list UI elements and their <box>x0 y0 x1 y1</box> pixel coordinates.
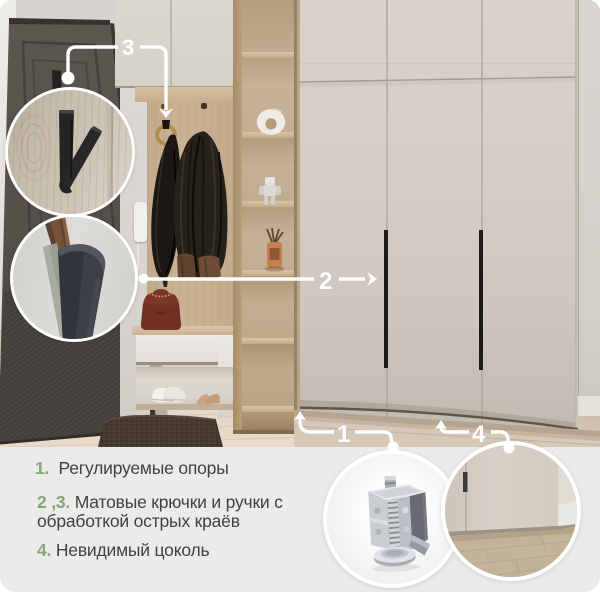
svg-text:1: 1 <box>337 421 350 448</box>
svg-text:2: 2 <box>319 268 332 295</box>
svg-text:3: 3 <box>122 35 134 60</box>
svg-text:4: 4 <box>472 421 486 448</box>
